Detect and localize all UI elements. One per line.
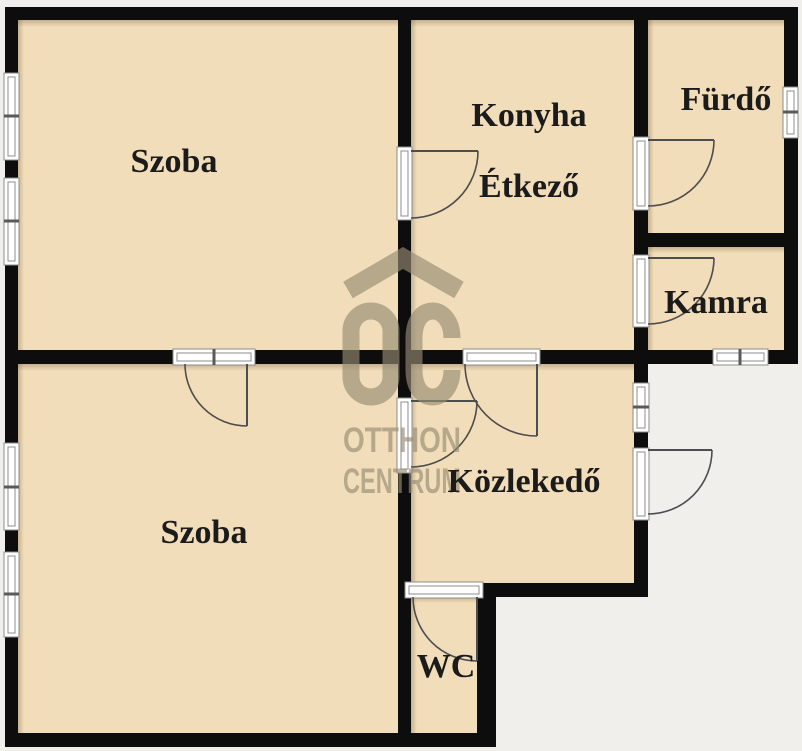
door-opening-szoba-szoba [173, 349, 255, 365]
floorplan: OTTHON CENTRUM Szoba Konyha Étkező Fürdő… [0, 0, 802, 751]
wall-bottom [5, 733, 496, 747]
door-opening-konyha-kozlekedo [463, 349, 540, 365]
window-kamra [713, 349, 768, 365]
wall-right [784, 7, 798, 364]
door-opening-szoba-konyha [397, 147, 412, 220]
wall-furdo-kamra [648, 233, 784, 247]
window-szoba-top-1 [4, 73, 19, 160]
wall-wc-right [477, 583, 496, 747]
room-label-kamra: Kamra [664, 284, 768, 322]
room-label-kozlekedo: Közlekedő [448, 463, 601, 501]
door-opening-furdo [633, 137, 649, 210]
room-label-wc: WC [417, 648, 476, 686]
door-opening-wc [405, 582, 483, 598]
door-opening-entrance [633, 448, 649, 520]
room-label-konyha: Konyha [471, 97, 586, 135]
room-label-szoba-bottom: Szoba [161, 514, 248, 552]
room-label-etkezo: Étkező [479, 168, 579, 206]
watermark-line1: OTTHON [343, 421, 461, 460]
room-label-szoba-top: Szoba [131, 143, 218, 181]
window-szoba-top-2 [4, 178, 19, 265]
window-szoba-bottom-1 [4, 443, 19, 530]
room-label-furdo: Fürdő [681, 81, 772, 119]
wall-top [5, 7, 798, 20]
window-szoba-bottom-2 [4, 552, 19, 637]
watermark-line2: CENTRUM [343, 462, 461, 501]
window-furdo [783, 87, 798, 138]
window-kozlekedo [633, 383, 649, 432]
door-opening-kamra [633, 255, 649, 327]
